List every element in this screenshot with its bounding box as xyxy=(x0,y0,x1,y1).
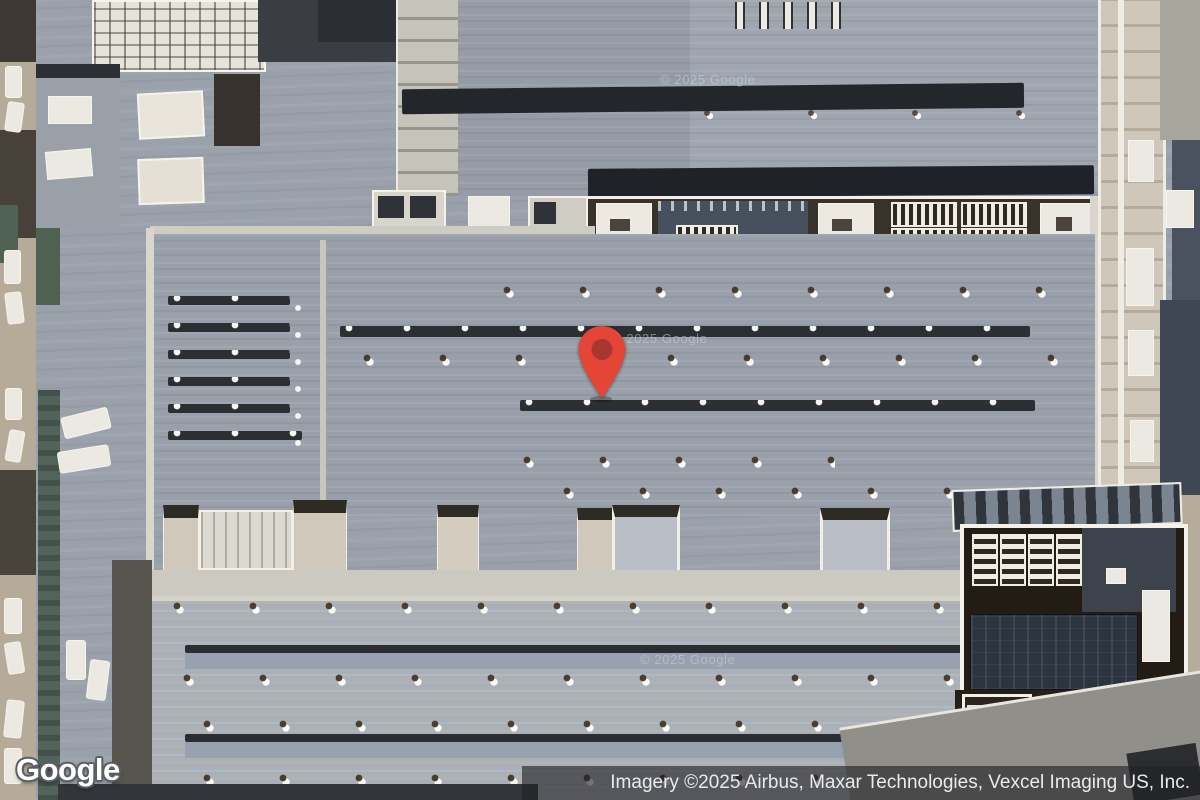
truck-trailer xyxy=(66,640,86,680)
truck-trailer xyxy=(4,598,22,634)
truck-trailer xyxy=(5,66,22,98)
hvac-unit-mark xyxy=(1056,217,1072,231)
penthouse-white xyxy=(137,90,205,139)
google-watermark: © 2025 Google xyxy=(660,72,755,87)
hvac-grille xyxy=(891,202,957,227)
right-edge-dark-block xyxy=(1160,300,1200,495)
alley-structure xyxy=(1128,330,1154,376)
right-edge-roof xyxy=(1160,0,1200,140)
enclosure-small-box xyxy=(1106,568,1126,584)
dock-structure xyxy=(45,148,93,180)
roof-seam xyxy=(146,228,154,600)
hvac-unit-mark xyxy=(610,219,630,231)
roof-monitor-bar xyxy=(168,377,290,386)
roof-vent-row xyxy=(700,110,1090,122)
map-pin-inner-dot xyxy=(592,339,613,360)
truck-trailer xyxy=(4,250,21,284)
bottom-shadow-strip xyxy=(58,784,538,800)
solar-panel-array xyxy=(970,614,1138,690)
map-pin-body xyxy=(579,326,626,398)
utility-enclosure xyxy=(960,524,1188,700)
roof-monitor-bar xyxy=(168,296,290,305)
rooftop-box-dark-cell xyxy=(378,196,404,218)
dock-structure xyxy=(48,96,92,124)
vent-tower xyxy=(1000,534,1026,586)
vent-tower xyxy=(1028,534,1054,586)
penthouse-panel xyxy=(199,510,293,570)
alley-structure xyxy=(1126,248,1154,306)
hvac-unit-mark xyxy=(832,219,852,231)
penthouse-white xyxy=(137,157,205,205)
roof-monitor-bar xyxy=(168,350,290,359)
roof-monitor-bar xyxy=(168,431,302,440)
google-logo[interactable]: Google xyxy=(16,752,120,788)
roof-edge-light-strip xyxy=(150,570,960,598)
penthouse xyxy=(437,505,479,578)
imagery-attribution: Imagery ©2025 Airbus, Maxar Technologies… xyxy=(522,766,1200,800)
roof-vent-row xyxy=(520,456,835,470)
roof-seam xyxy=(320,240,326,516)
penthouse xyxy=(293,500,347,580)
gridded-rooftop-building xyxy=(92,0,266,72)
roof-seam xyxy=(150,226,595,234)
grass-strip xyxy=(38,390,60,800)
dark-utility-block xyxy=(214,74,260,146)
penthouse xyxy=(577,508,613,579)
right-edge-dark-block xyxy=(1172,140,1200,320)
left-dock-building xyxy=(36,64,120,228)
alley-structure xyxy=(1130,420,1154,462)
map-pin-icon[interactable] xyxy=(575,324,629,402)
roof-skylight-slits xyxy=(735,2,853,29)
roof-vent-row xyxy=(500,286,1060,300)
alley-structure xyxy=(1128,140,1154,182)
left-road-shadow xyxy=(0,0,36,62)
hvac-grille xyxy=(961,202,1027,227)
roof-vent-column xyxy=(292,300,304,448)
vent-tower xyxy=(972,534,998,586)
roof-vent-row xyxy=(560,487,970,501)
enclosure-column xyxy=(1142,590,1170,662)
rooftop-box-dark-cell xyxy=(410,196,436,218)
pipe-line xyxy=(1118,0,1124,495)
rooftop-box-dark-cell xyxy=(534,202,556,224)
truck-trailer xyxy=(5,388,22,420)
dark-roof-block xyxy=(318,0,400,42)
roof-monitor-bar xyxy=(168,404,290,413)
google-watermark: © 2025 Google xyxy=(640,652,735,667)
roof-edge-shadow xyxy=(588,165,1094,198)
left-road-shadow xyxy=(0,470,36,575)
roof-vent-row xyxy=(360,354,1060,368)
roof-monitor-bar xyxy=(168,323,290,332)
imagery-attribution-text: Imagery ©2025 Airbus, Maxar Technologies… xyxy=(610,772,1190,793)
alley-structure xyxy=(1166,190,1194,228)
map-canvas[interactable]: © 2025 Google © 2025 Google © 2025 Googl… xyxy=(0,0,1200,800)
vent-tower xyxy=(1056,534,1082,586)
